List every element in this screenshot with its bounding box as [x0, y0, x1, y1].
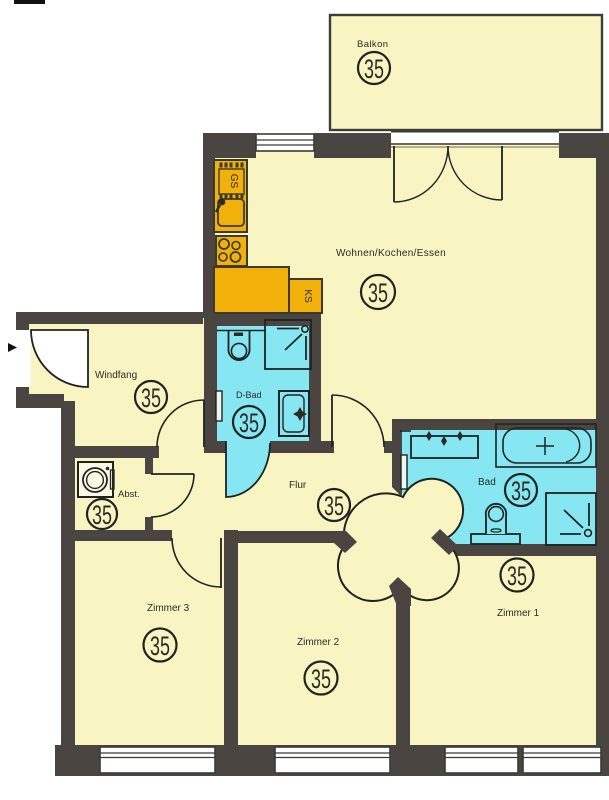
svg-text:Windfang: Windfang — [95, 370, 137, 381]
svg-text:35: 35 — [324, 491, 344, 521]
svg-text:Balkon: Balkon — [357, 39, 388, 50]
svg-text:35: 35 — [311, 664, 331, 694]
svg-text:Wohnen/Kochen/Essen: Wohnen/Kochen/Essen — [336, 248, 446, 259]
svg-text:Bad: Bad — [478, 477, 496, 488]
svg-text:Abst.: Abst. — [118, 489, 140, 500]
svg-text:GS: GS — [228, 174, 239, 189]
svg-text:35: 35 — [511, 476, 531, 506]
svg-text:35: 35 — [150, 631, 170, 661]
svg-text:Zimmer 3: Zimmer 3 — [147, 603, 190, 614]
svg-text:35: 35 — [92, 500, 112, 530]
svg-text:Zimmer 2: Zimmer 2 — [297, 637, 340, 648]
svg-text:KS: KS — [302, 289, 313, 303]
svg-text:D-Bad: D-Bad — [236, 390, 262, 400]
svg-text:35: 35 — [507, 561, 527, 591]
svg-text:Zimmer 1: Zimmer 1 — [497, 608, 540, 619]
svg-text:35: 35 — [239, 408, 259, 438]
svg-text:35: 35 — [141, 383, 161, 413]
svg-text:35: 35 — [364, 54, 384, 84]
svg-text:35: 35 — [368, 278, 388, 308]
svg-text:Flur: Flur — [289, 480, 307, 491]
